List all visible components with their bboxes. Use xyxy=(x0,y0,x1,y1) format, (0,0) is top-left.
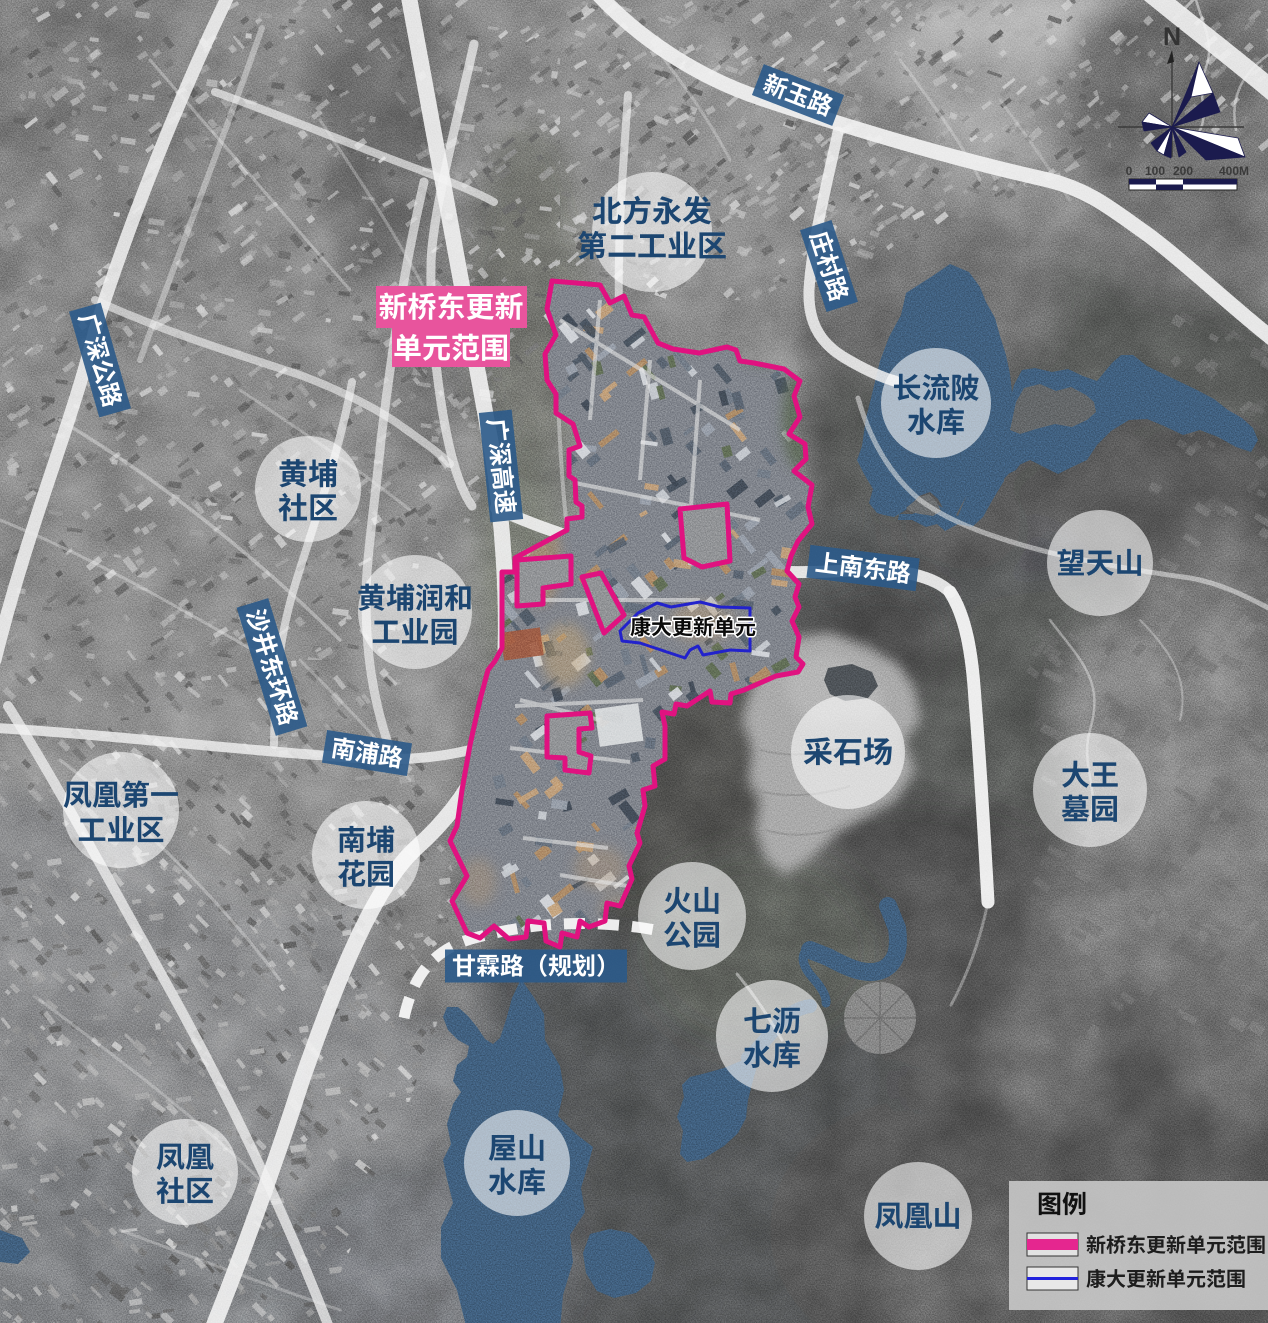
svg-text:400M: 400M xyxy=(1219,164,1249,178)
svg-text:N: N xyxy=(1163,23,1181,51)
svg-text:0: 0 xyxy=(1126,164,1133,178)
svg-text:200: 200 xyxy=(1173,164,1193,178)
svg-text:100: 100 xyxy=(1145,164,1165,178)
